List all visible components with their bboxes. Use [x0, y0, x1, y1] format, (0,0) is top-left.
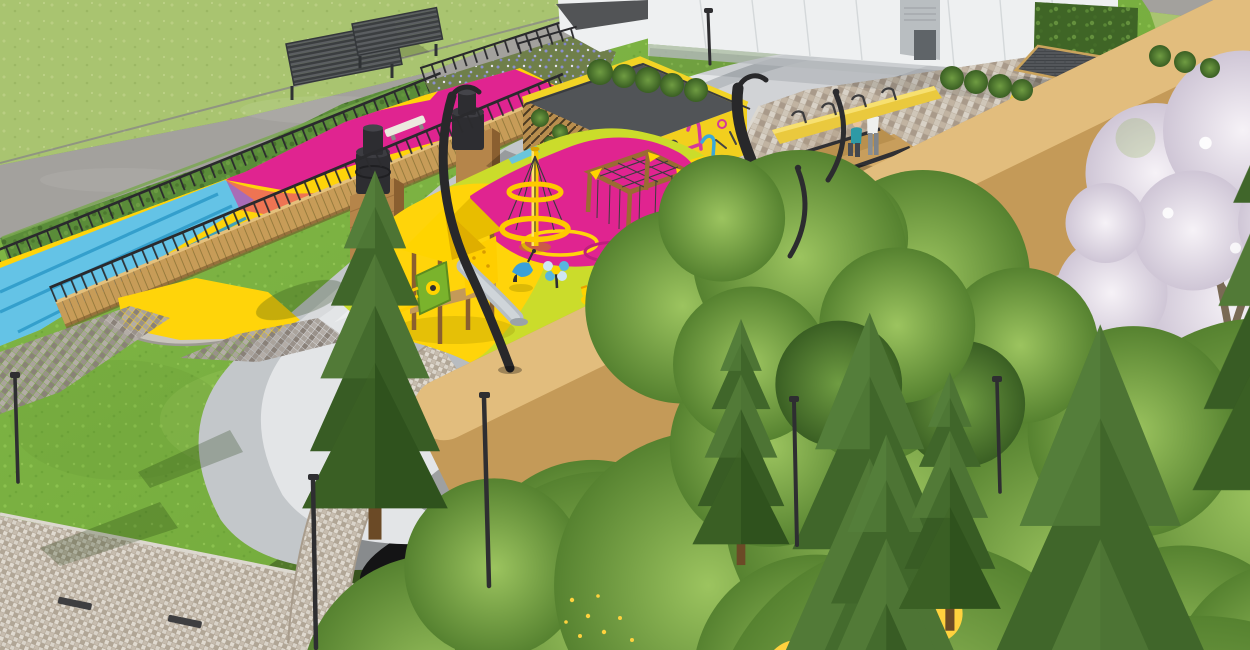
sitting-person: [851, 127, 862, 144]
rendering-canvas: [0, 0, 1250, 650]
courtyard-render: [0, 0, 1250, 650]
entrance-door: [914, 30, 936, 60]
